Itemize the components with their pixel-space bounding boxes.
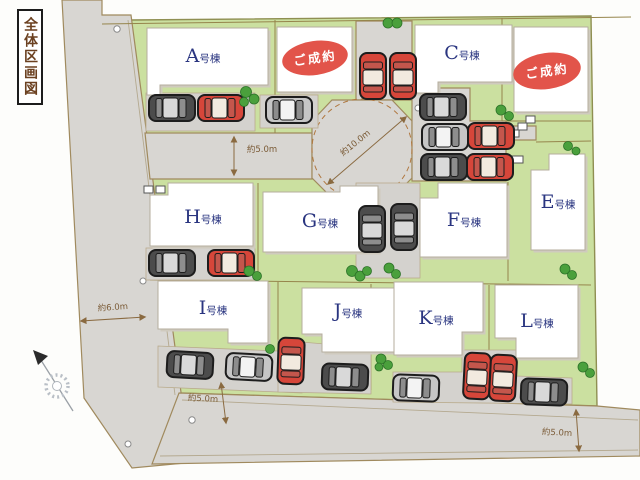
svg-text:約5.0m: 約5.0m: [188, 392, 219, 405]
car: [391, 204, 417, 250]
car: [489, 354, 517, 401]
car: [360, 53, 386, 99]
manhole: [114, 26, 120, 32]
building-a: A号棟: [147, 28, 271, 98]
building-b-sold: ご成約: [277, 27, 355, 95]
building-d-sold: ご成約: [511, 27, 591, 115]
plan-title: 全体区画図: [17, 9, 43, 105]
car: [149, 250, 195, 276]
svg-text:約5.0m: 約5.0m: [542, 426, 573, 439]
car: [359, 206, 385, 252]
compass-center: [53, 382, 62, 391]
car: [198, 95, 244, 121]
north-arrow: [33, 350, 73, 411]
utility-box: [144, 186, 153, 193]
car: [225, 353, 272, 381]
car: [393, 374, 440, 402]
car: [277, 338, 305, 385]
utility-box: [156, 186, 165, 193]
car: [166, 351, 213, 379]
car: [322, 363, 369, 391]
site-plan-drawing: A号棟 ご成約 C号棟 ご成約 H号棟: [0, 0, 640, 480]
manhole: [140, 278, 146, 284]
car: [463, 352, 491, 399]
car: [521, 378, 568, 406]
car: [467, 154, 513, 180]
manhole: [125, 441, 131, 447]
car: [390, 53, 416, 99]
car: [420, 94, 466, 120]
car: [266, 97, 312, 123]
site-plan-canvas: A号棟 ご成約 C号棟 ご成約 H号棟: [0, 0, 640, 480]
svg-text:約5.0m: 約5.0m: [247, 144, 277, 155]
car: [422, 124, 468, 150]
car: [149, 95, 195, 121]
north-arrow-head: [33, 350, 48, 365]
road-top: [145, 133, 312, 179]
svg-text:約6.0m: 約6.0m: [97, 301, 128, 314]
car: [468, 123, 514, 149]
manhole: [189, 417, 195, 423]
car: [421, 154, 467, 180]
